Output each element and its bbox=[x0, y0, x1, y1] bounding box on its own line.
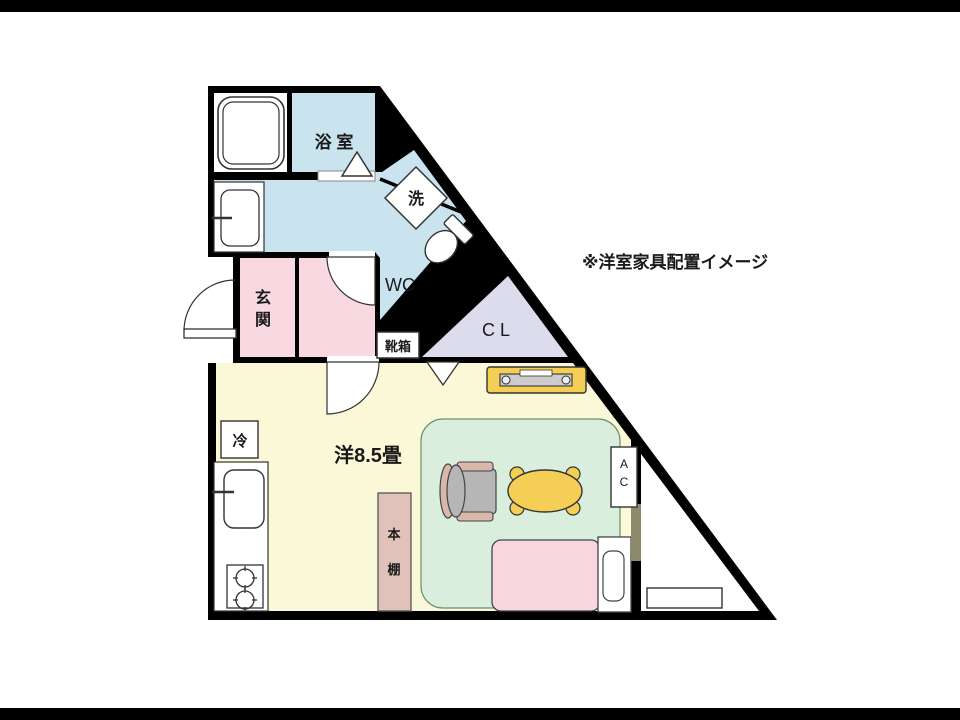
label-aircon-1: A bbox=[620, 457, 628, 471]
table-icon bbox=[508, 467, 582, 515]
note-text: ※洋室家具配置イメージ bbox=[582, 252, 768, 272]
floorplan-canvas: 浴 室 洗 WC 玄 関 靴箱 C L 洋8.5畳 冷 本 棚 A C ※洋室家… bbox=[0, 0, 960, 720]
tv-knob bbox=[502, 376, 510, 384]
bookshelf bbox=[378, 493, 411, 611]
bed-body bbox=[492, 540, 600, 611]
front-door-leaf bbox=[184, 329, 236, 338]
label-wc: WC bbox=[385, 275, 415, 295]
label-closet: C L bbox=[482, 320, 510, 340]
label-main-room: 洋8.5畳 bbox=[334, 443, 402, 467]
chair-backrest bbox=[447, 465, 465, 517]
table-top bbox=[508, 470, 582, 512]
balcony-item bbox=[647, 588, 722, 608]
label-aircon-2: C bbox=[620, 475, 629, 489]
label-entrance-2: 関 bbox=[255, 311, 271, 329]
label-fridge: 冷 bbox=[232, 432, 247, 450]
bed-pillow bbox=[603, 551, 624, 601]
bed-icon bbox=[492, 537, 631, 612]
label-bookshelf-1: 本 bbox=[387, 527, 400, 542]
label-bookshelf-2: 棚 bbox=[387, 562, 400, 577]
kitchen-counter bbox=[212, 462, 268, 612]
tv-top-piece bbox=[520, 370, 552, 376]
tv-knob bbox=[562, 376, 570, 384]
bathtub-icon bbox=[218, 97, 284, 169]
chair-armrest bbox=[457, 462, 493, 471]
label-shoebox: 靴箱 bbox=[385, 339, 411, 354]
floorplan-page: 浴 室 洗 WC 玄 関 靴箱 C L 洋8.5畳 冷 本 棚 A C ※洋室家… bbox=[0, 0, 960, 720]
tv-board-icon bbox=[487, 367, 586, 393]
chair-icon bbox=[440, 462, 496, 521]
label-entrance-1: 玄 bbox=[255, 288, 271, 307]
entrance-floor bbox=[240, 258, 295, 357]
kitchen-sink-icon bbox=[224, 470, 264, 528]
label-washer: 洗 bbox=[408, 189, 424, 208]
bathtub-outer bbox=[218, 97, 284, 169]
label-bathroom: 浴 室 bbox=[315, 132, 354, 152]
washbasin-icon bbox=[212, 182, 264, 252]
window-segment bbox=[631, 504, 641, 561]
chair-armrest bbox=[457, 512, 493, 521]
